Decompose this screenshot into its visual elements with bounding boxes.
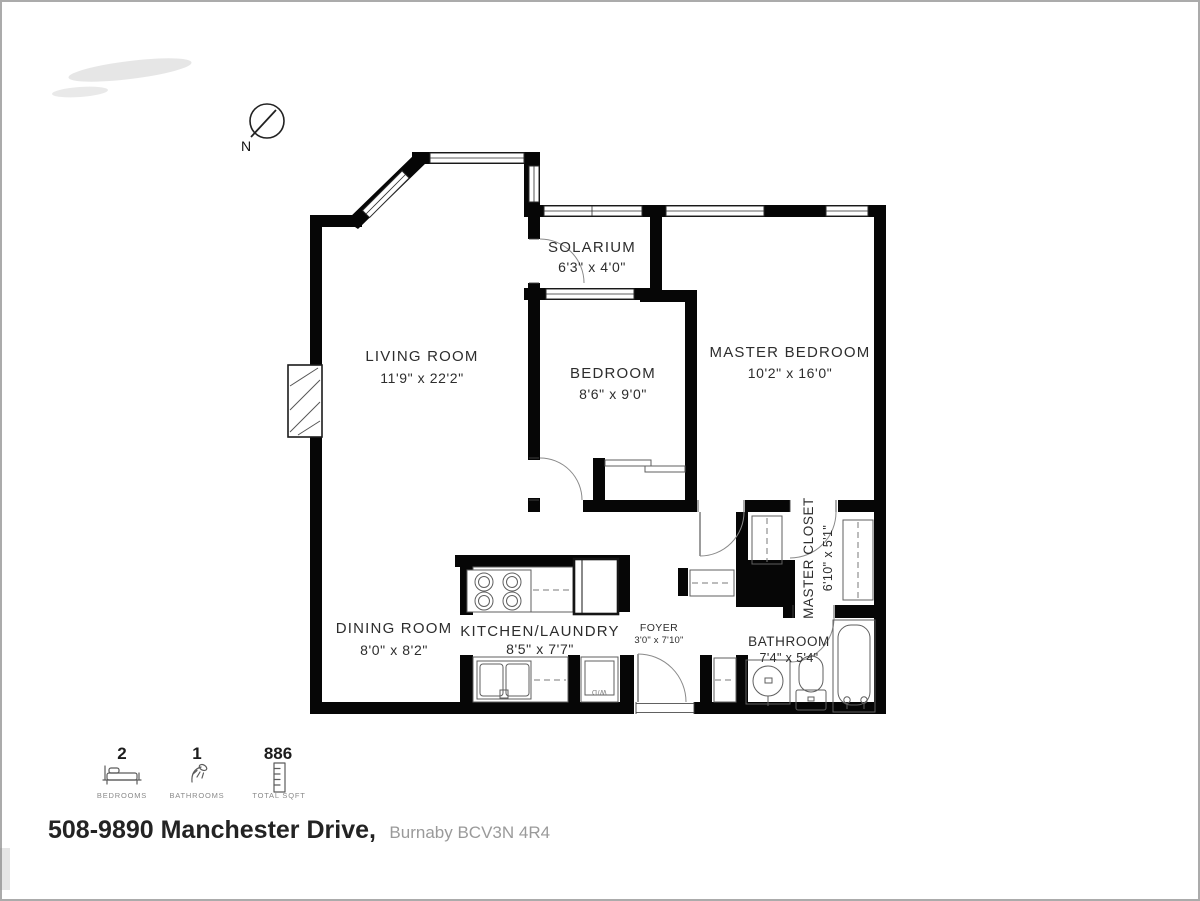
window-master-b <box>826 206 868 216</box>
room-dims-solarium: 6'3" x 4'0" <box>558 259 626 275</box>
room-label-master-closet: MASTER CLOSET <box>801 497 816 619</box>
room-dims-kitchen-laundry: 8'5" x 7'7" <box>506 641 574 657</box>
fireplace <box>288 365 322 437</box>
window-corner-post <box>529 166 539 202</box>
page-border <box>1 1 1199 900</box>
stove-icon <box>467 570 531 612</box>
floorplan-page: N <box>0 0 1200 901</box>
room-dims-master-bedroom: 10'2" x 16'0" <box>748 365 833 381</box>
room-dims-bedroom: 8'6" x 9'0" <box>579 386 647 402</box>
floorplan-canvas: N <box>0 0 1200 901</box>
bedrooms-count: 2 <box>117 744 126 763</box>
compass-north-label: N <box>241 138 251 154</box>
room-label-solarium: SOLARIUM <box>548 239 636 256</box>
address-main: 508-9890 Manchester Drive, <box>48 816 376 844</box>
window-master-a <box>666 206 764 216</box>
window-solarium-bottom <box>546 289 634 299</box>
bathrooms-label: BATHROOMS <box>170 791 225 800</box>
window-solarium-top <box>544 206 642 216</box>
room-dims-foyer: 3'0" x 7'10" <box>634 635 683 646</box>
room-label-foyer: FOYER <box>640 622 678 634</box>
room-dims-living-room: 11'9" x 22'2" <box>380 370 464 386</box>
room-label-kitchen-laundry: KITCHEN/LAUNDRY <box>460 623 619 640</box>
room-label-living-room: LIVING ROOM <box>365 348 478 365</box>
room-label-bedroom: BEDROOM <box>570 365 656 382</box>
room-label-bathroom: BATHROOM <box>748 634 830 649</box>
room-dims-bathroom: 7'4" x 5'4" <box>759 651 818 665</box>
fridge-icon <box>574 559 618 614</box>
room-dims-master-closet: 6'10" x 5'1" <box>821 525 835 591</box>
room-label-master-bedroom: MASTER BEDROOM <box>710 344 871 361</box>
bathrooms-count: 1 <box>192 744 201 763</box>
bedrooms-label: BEDROOMS <box>97 791 147 800</box>
room-dims-dining-room: 8'0" x 8'2" <box>360 642 428 658</box>
room-label-dining-room: DINING ROOM <box>336 620 453 637</box>
sqft-count: 886 <box>264 744 292 763</box>
address-city-postal: Burnaby BCV3N 4R4 <box>389 823 550 842</box>
window-living-top <box>430 153 524 163</box>
sqft-label: TOTAL SQFT <box>252 791 305 800</box>
washer-dryer-label: W/D <box>591 688 606 695</box>
